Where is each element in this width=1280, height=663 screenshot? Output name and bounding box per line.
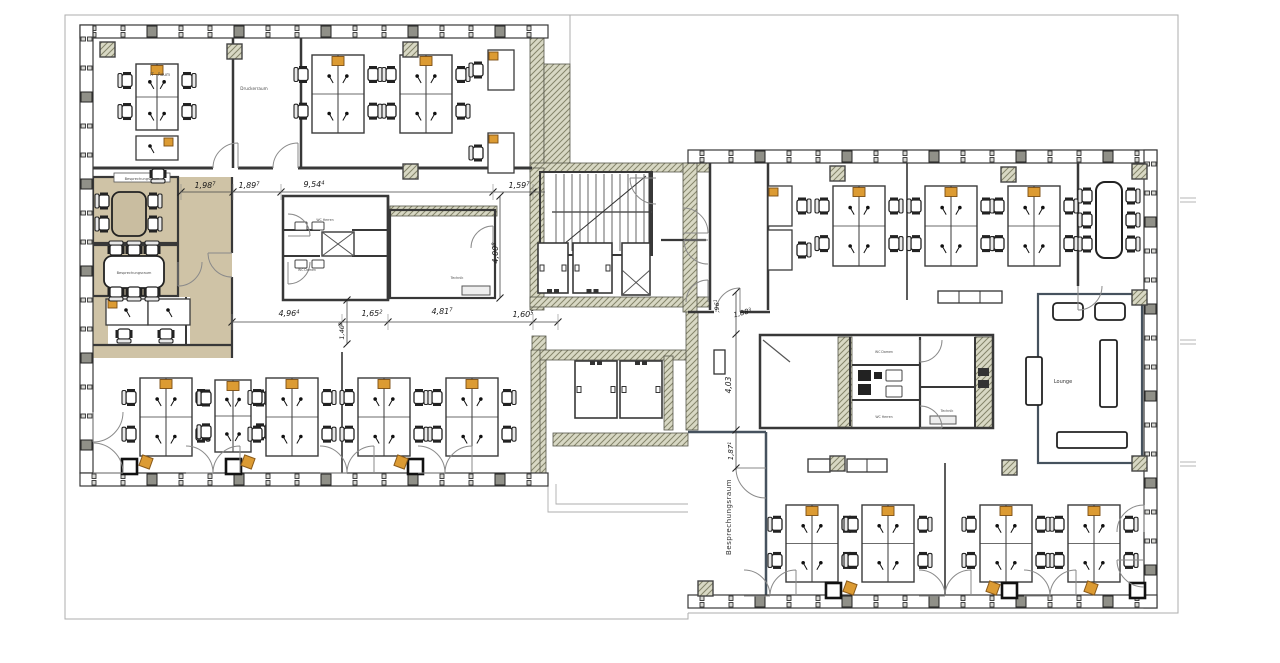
- chair: [122, 426, 136, 443]
- chair-arm: [1037, 552, 1045, 554]
- chair-back: [1046, 517, 1050, 531]
- dim-sup: 8: [338, 322, 343, 325]
- window-mullion: [1152, 423, 1157, 427]
- chair-arm: [1065, 198, 1073, 200]
- chair-seat: [911, 200, 921, 212]
- window-mullion: [179, 33, 183, 38]
- window-mullion: [729, 151, 733, 156]
- chair-arm: [1083, 202, 1091, 204]
- chair-arm: [1125, 531, 1133, 533]
- chair-seat: [502, 428, 512, 440]
- chair-seat: [1082, 214, 1092, 226]
- generated-drawing-layer: [65, 15, 1196, 619]
- window-mullion: [1152, 249, 1157, 253]
- chair-seat: [344, 428, 354, 440]
- chair-back: [122, 391, 126, 405]
- window-mullion: [440, 33, 444, 38]
- chair-arm: [995, 250, 1003, 252]
- dim-sup: 7: [449, 308, 453, 314]
- terrace-steps: [548, 476, 688, 512]
- chair-back: [145, 241, 159, 245]
- window-mullion: [961, 151, 965, 156]
- chair: [428, 426, 442, 443]
- chair: [990, 235, 1004, 252]
- window-mullion: [440, 481, 444, 486]
- chair: [456, 66, 470, 83]
- chair-seat: [1124, 518, 1134, 530]
- chair-back: [294, 68, 298, 82]
- chair-seat: [1064, 238, 1074, 250]
- chair: [1064, 235, 1078, 252]
- window-mullion: [81, 414, 86, 418]
- room-label-technik-right: Technik: [940, 409, 954, 413]
- window-mullion: [527, 26, 531, 31]
- window-mullion: [787, 603, 791, 608]
- chair-arm: [457, 81, 465, 83]
- desk-equipment-orange: [1088, 507, 1100, 516]
- chair-arm: [995, 212, 1003, 214]
- chair-back: [424, 391, 428, 405]
- technik-room: [390, 210, 495, 298]
- window-mullion: [816, 603, 820, 608]
- chair-seat: [298, 69, 308, 81]
- window-mullion: [1152, 278, 1157, 282]
- chair: [1064, 198, 1078, 215]
- chair-arm: [323, 389, 331, 391]
- window-mullion: [1145, 510, 1150, 514]
- chair-arm: [100, 230, 108, 232]
- facade-column: [1145, 217, 1156, 227]
- hatched-wall: [530, 38, 544, 168]
- chair: [502, 389, 516, 406]
- window-mullion: [527, 481, 531, 486]
- desk-equipment-orange: [806, 507, 818, 516]
- desk-equipment-orange: [286, 380, 298, 389]
- chair: [340, 426, 354, 443]
- chair-seat: [1054, 554, 1064, 566]
- chair-arm: [100, 216, 108, 218]
- window-mullion: [1135, 151, 1139, 156]
- chair-arm: [202, 423, 210, 425]
- floor-box: [1002, 583, 1017, 598]
- chair: [144, 241, 161, 255]
- desk-equipment-orange: [164, 138, 173, 146]
- dim-1-40: 1,408: [338, 322, 346, 339]
- chair-arm: [183, 118, 191, 120]
- chair: [962, 516, 976, 533]
- meeting-table-right: [1096, 182, 1122, 258]
- chair: [108, 241, 125, 255]
- orange-floor-marker: [986, 581, 1000, 595]
- window-mullion: [816, 158, 820, 163]
- window-mullion: [88, 327, 93, 331]
- furniture-layer: [95, 50, 1140, 582]
- chair-back: [248, 427, 252, 441]
- chair-seat: [148, 195, 158, 207]
- desk-equipment-orange: [489, 135, 498, 143]
- chair-arm: [1065, 235, 1073, 237]
- chair-arm: [982, 198, 990, 200]
- chair-back: [807, 243, 811, 257]
- dim-1-87: 1,871: [727, 442, 735, 461]
- window-mullion: [81, 240, 86, 244]
- dim-0-96: ,961: [713, 299, 721, 312]
- chair-back: [1078, 213, 1082, 227]
- window-mullion: [266, 33, 270, 38]
- chair-arm: [299, 66, 307, 68]
- floor-box: [408, 459, 423, 474]
- window-mullion: [88, 124, 93, 128]
- facade-column: [1103, 151, 1113, 162]
- chair-arm: [1125, 567, 1133, 569]
- window-mullion: [903, 603, 907, 608]
- chair-seat: [322, 428, 332, 440]
- window-mullion: [469, 33, 473, 38]
- window-mullion: [179, 26, 183, 31]
- chair-arm: [387, 81, 395, 83]
- chair: [1036, 516, 1050, 533]
- chair: [1124, 516, 1138, 533]
- chair-seat: [201, 392, 211, 404]
- facade-column: [234, 474, 244, 485]
- wc-fixture: [886, 386, 902, 397]
- structural-column: [1132, 456, 1147, 471]
- chair-seat: [146, 245, 158, 255]
- chair-seat: [368, 69, 378, 81]
- floor-box: [826, 583, 841, 598]
- chair-arm: [1065, 250, 1073, 252]
- chair-seat: [1126, 214, 1136, 226]
- chair-arm: [457, 117, 465, 119]
- chair-seat: [148, 218, 158, 230]
- chair-arm: [127, 389, 135, 391]
- chair-back: [1136, 213, 1140, 227]
- chair-arm: [1127, 188, 1135, 190]
- chair-seat: [819, 200, 829, 212]
- chair-back: [928, 517, 932, 531]
- chair-arm: [164, 170, 166, 178]
- window-mullion: [1077, 158, 1081, 163]
- window-mullion: [990, 603, 994, 608]
- chair-seat: [414, 428, 424, 440]
- chair-arm: [503, 389, 511, 391]
- room-label-wc-herren-right: WC Herren: [875, 415, 892, 419]
- chair-back: [1078, 189, 1082, 203]
- chair-back: [1078, 237, 1082, 251]
- chair-arm: [798, 212, 806, 214]
- lounge-seat: [1095, 303, 1125, 320]
- facade-column: [929, 151, 939, 162]
- room-label-wc-herren-left: WC Herren: [316, 218, 333, 222]
- window-mullion: [88, 298, 93, 302]
- chair-back: [990, 199, 994, 213]
- chair-seat: [918, 518, 928, 530]
- structural-column: [698, 581, 713, 596]
- chair-arm: [100, 207, 108, 209]
- chair-seat: [182, 75, 192, 87]
- window-mullion: [961, 596, 965, 601]
- dim-4-81: 4,817: [431, 307, 453, 316]
- chair-arm: [967, 531, 975, 533]
- facade-column: [81, 440, 92, 450]
- chair-back: [1046, 553, 1050, 567]
- chair-seat: [252, 392, 262, 404]
- elevator-door-mark: [590, 361, 595, 365]
- chair-seat: [1036, 554, 1046, 566]
- chair-arm: [820, 212, 828, 214]
- chair: [1050, 516, 1064, 533]
- chair: [248, 426, 262, 443]
- chair: [918, 552, 932, 569]
- chair: [1126, 188, 1140, 205]
- chair-arm: [345, 426, 353, 428]
- chair-seat: [146, 287, 158, 297]
- chair-arm: [912, 250, 920, 252]
- desk-equipment-orange: [420, 57, 432, 66]
- chair-seat: [502, 392, 512, 404]
- room-label-meeting-right: Besprechungsraum: [724, 479, 733, 555]
- window-mullion: [88, 37, 93, 41]
- desk-equipment-orange: [489, 52, 498, 60]
- window-mullion: [81, 298, 86, 302]
- chair-seat: [252, 428, 262, 440]
- chair-arm: [253, 426, 261, 428]
- window-mullion: [121, 33, 125, 38]
- chair-back: [1136, 189, 1140, 203]
- elevator-door-mark: [587, 289, 592, 293]
- chair-arm: [183, 103, 191, 105]
- chair: [294, 103, 308, 120]
- chair-back: [378, 104, 382, 118]
- facade-column: [495, 26, 505, 37]
- chair-arm: [1065, 212, 1073, 214]
- window-mullion: [990, 151, 994, 156]
- chair: [382, 66, 396, 83]
- chair-arm: [369, 81, 377, 83]
- chair-arm: [798, 242, 806, 244]
- lounge-table: [1026, 357, 1042, 405]
- window-mullion: [729, 603, 733, 608]
- window-mullion: [1145, 365, 1150, 369]
- door-swing: [320, 446, 347, 473]
- chair-arm: [149, 216, 157, 218]
- chair-arm: [1127, 236, 1135, 238]
- window-mullion: [1145, 278, 1150, 282]
- window-mullion: [787, 596, 791, 601]
- orange-floor-marker: [139, 455, 153, 469]
- desk-equipment-orange: [227, 382, 239, 391]
- floor-plan-svg: IT - Raum Druckerraum Besprechungsraum B…: [0, 0, 1280, 663]
- chair-back: [844, 517, 848, 531]
- chair-arm: [503, 404, 511, 406]
- dim-sup: 3: [748, 307, 752, 314]
- orange-floor-marker: [394, 455, 408, 469]
- chair: [456, 103, 470, 120]
- window-mullion: [353, 481, 357, 486]
- window-mullion: [700, 158, 704, 163]
- elevator-door-mark: [594, 289, 599, 293]
- chair-arm: [126, 288, 128, 296]
- dim-4-03: 4,03: [724, 376, 733, 393]
- window-mullion: [816, 596, 820, 601]
- chair-back: [378, 68, 382, 82]
- structural-column: [403, 42, 418, 57]
- chair-arm: [474, 62, 482, 64]
- window-mullion: [266, 474, 270, 479]
- chair-arm: [122, 246, 124, 254]
- facade-column: [81, 266, 92, 276]
- facade-column: [1145, 391, 1156, 401]
- chair: [248, 389, 262, 406]
- chair: [1050, 552, 1064, 569]
- window-mullion: [990, 596, 994, 601]
- chair-back: [294, 104, 298, 118]
- chair: [962, 552, 976, 569]
- window-mullion: [353, 26, 357, 31]
- chair-arm: [433, 440, 441, 442]
- chair-arm: [1127, 212, 1135, 214]
- window-mullion: [88, 240, 93, 244]
- chair-arm: [773, 531, 781, 533]
- window-mullion: [208, 481, 212, 486]
- chair-arm: [967, 552, 975, 554]
- chair-arm: [183, 72, 191, 74]
- cabinet: [938, 291, 1002, 303]
- chair-arm: [1037, 516, 1045, 518]
- window-mullion: [382, 481, 386, 486]
- chair-arm: [912, 198, 920, 200]
- door-swing: [273, 143, 298, 168]
- facade-column: [755, 151, 765, 162]
- chair-arm: [995, 235, 1003, 237]
- cabinet: [808, 459, 830, 472]
- chair-back: [192, 74, 196, 88]
- door-swing: [919, 570, 945, 596]
- chair-arm: [1083, 212, 1091, 214]
- chair-arm: [149, 230, 157, 232]
- elevator-door-mark: [642, 361, 647, 365]
- chair-seat: [994, 200, 1004, 212]
- wc-fixture: [858, 370, 871, 381]
- door-swing: [93, 412, 123, 442]
- dim-value: ,96: [713, 302, 721, 312]
- chair-arm: [982, 250, 990, 252]
- chair-seat: [1126, 238, 1136, 250]
- chair-arm: [127, 440, 135, 442]
- chair: [918, 516, 932, 533]
- facade-column: [1145, 478, 1156, 488]
- dim-value: 1,59: [508, 181, 526, 190]
- window-mullion: [1152, 452, 1157, 456]
- chair: [469, 145, 483, 162]
- chair-arm: [1055, 552, 1063, 554]
- chair-arm: [345, 389, 353, 391]
- chair-arm: [253, 440, 261, 442]
- structural-column: [100, 42, 115, 57]
- chair: [294, 66, 308, 83]
- facade-column: [147, 474, 157, 485]
- chair-arm: [253, 404, 261, 406]
- wc-fixture: [312, 260, 324, 268]
- chair-arm: [140, 246, 142, 254]
- chair-back: [197, 425, 201, 439]
- facade-column: [81, 92, 92, 102]
- chair-seat: [456, 69, 466, 81]
- chair-arm: [387, 103, 395, 105]
- facade-column: [1103, 596, 1113, 607]
- chair-arm: [1055, 516, 1063, 518]
- chair-arm: [172, 330, 174, 338]
- window-mullion: [1152, 365, 1157, 369]
- chair-arm: [197, 440, 205, 442]
- chair-seat: [473, 64, 483, 76]
- chair: [469, 62, 483, 79]
- single-desk: [768, 230, 792, 270]
- window-mullion: [121, 481, 125, 486]
- window-mullion: [1048, 151, 1052, 156]
- window-mullion: [1077, 596, 1081, 601]
- chair: [158, 329, 175, 343]
- dim-1-89: 1,897: [238, 181, 260, 190]
- chair-arm: [474, 145, 482, 147]
- dim-sup: 4: [321, 181, 324, 187]
- wc-fixture: [886, 370, 902, 381]
- elevator-door-mark: [597, 361, 602, 365]
- chair-arm: [1127, 226, 1135, 228]
- chair-arm: [1083, 236, 1091, 238]
- chair: [414, 426, 428, 443]
- window-mullion: [208, 474, 212, 479]
- chair-arm: [183, 87, 191, 89]
- window-mullion: [1152, 539, 1157, 543]
- chair-back: [469, 63, 473, 77]
- chair-back: [990, 237, 994, 251]
- chair-arm: [773, 552, 781, 554]
- chair-back: [122, 427, 126, 441]
- window-mullion: [121, 26, 125, 31]
- chair-arm: [202, 404, 210, 406]
- door-swing: [920, 340, 942, 362]
- chair-arm: [108, 288, 110, 296]
- chair-arm: [149, 193, 157, 195]
- window-mullion: [469, 481, 473, 486]
- chair-seat: [994, 238, 1004, 250]
- chair-arm: [1037, 531, 1045, 533]
- chair: [148, 193, 162, 210]
- chair-seat: [122, 75, 132, 87]
- chair-seat: [128, 245, 140, 255]
- chair: [1078, 236, 1092, 253]
- chair-arm: [912, 212, 920, 214]
- chair-arm: [323, 404, 331, 406]
- window-mullion: [961, 603, 965, 608]
- chair: [322, 426, 336, 443]
- room-label-meeting-upper: Besprechungsraum: [125, 177, 160, 181]
- window-mullion: [382, 26, 386, 31]
- chair-arm: [982, 212, 990, 214]
- chair-back: [248, 391, 252, 405]
- wc-fixture: [295, 260, 307, 268]
- chair-arm: [820, 235, 828, 237]
- dim-value: 1,87: [727, 444, 735, 460]
- chair-seat: [432, 392, 442, 404]
- chair-arm: [773, 567, 781, 569]
- hatched-wall: [544, 64, 570, 164]
- room-label-wc-damen-right: WC Damen: [875, 350, 893, 354]
- chair: [502, 426, 516, 443]
- elevator-door-mark: [554, 289, 559, 293]
- chair-arm: [1083, 188, 1091, 190]
